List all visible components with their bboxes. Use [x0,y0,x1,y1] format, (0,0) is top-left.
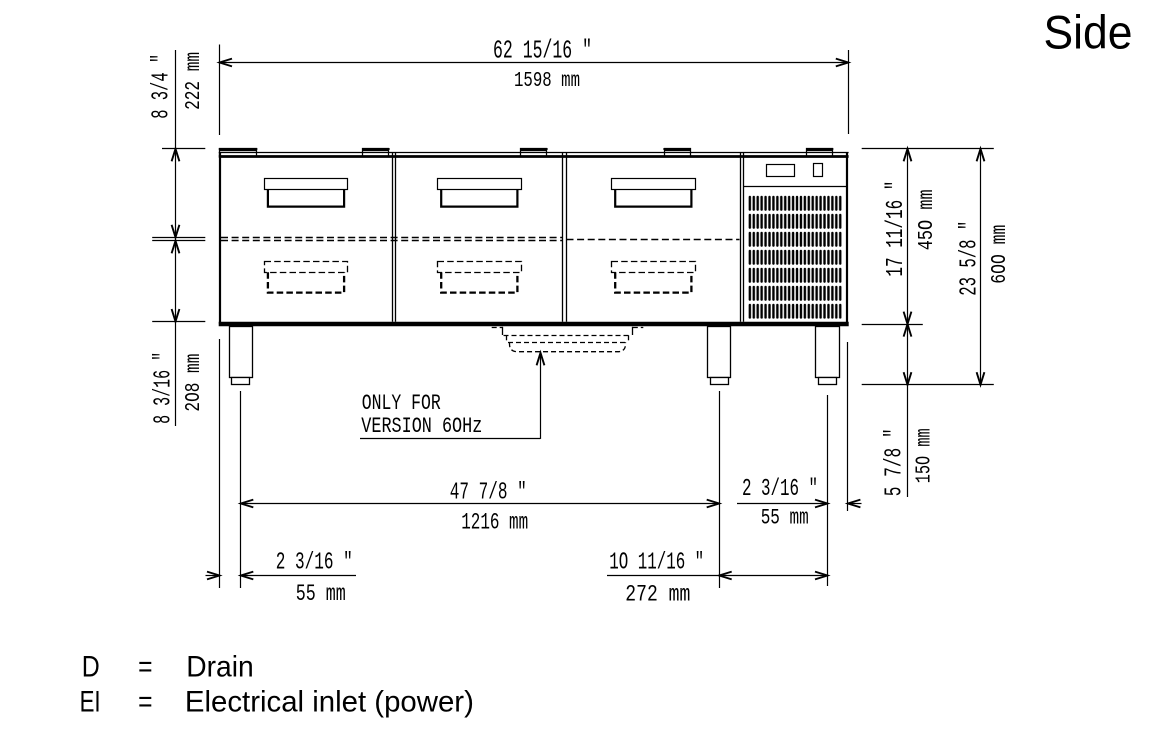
svg-text:2 3/16 ": 2 3/16 " [742,476,818,503]
svg-text:47 7/8 ": 47 7/8 " [450,480,527,507]
svg-text:=: = [138,685,152,718]
svg-text:Drain: Drain [186,650,254,683]
svg-text:5 7/8 ": 5 7/8 " [882,428,909,496]
svg-text:=: = [138,650,152,683]
svg-text:VERSION 6OHz: VERSION 6OHz [361,413,482,439]
svg-text:55 mm: 55 mm [761,505,809,531]
svg-text:Electrical inlet (power): Electrical inlet (power) [185,685,474,718]
svg-text:1O 11/16 ": 1O 11/16 " [609,549,704,576]
svg-text:2O8 mm: 2O8 mm [182,354,206,412]
svg-text:8 3/16 ": 8 3/16 " [151,352,178,424]
svg-text:222 mm: 222 mm [182,52,206,110]
svg-text:55 mm: 55 mm [296,581,346,607]
svg-text:45O mm: 45O mm [915,189,939,250]
svg-text:Side: Side [1044,6,1133,59]
svg-text:62 15/16 ": 62 15/16 " [493,35,592,65]
svg-text:15O mm: 15O mm [913,428,937,483]
svg-text:23 5/8 ": 23 5/8 " [957,221,984,296]
svg-text:D: D [82,650,100,683]
svg-text:1598 mm: 1598 mm [514,70,580,93]
svg-text:17 11/16 ": 17 11/16 " [883,181,910,277]
svg-text:EI: EI [80,685,101,718]
svg-text:1216 mm: 1216 mm [461,510,528,536]
svg-text:2 3/16 ": 2 3/16 " [276,550,353,577]
svg-text:6OO mm: 6OO mm [988,225,1012,284]
svg-text:272 mm: 272 mm [625,582,690,608]
svg-text:8 3/4 ": 8 3/4 " [149,54,176,119]
